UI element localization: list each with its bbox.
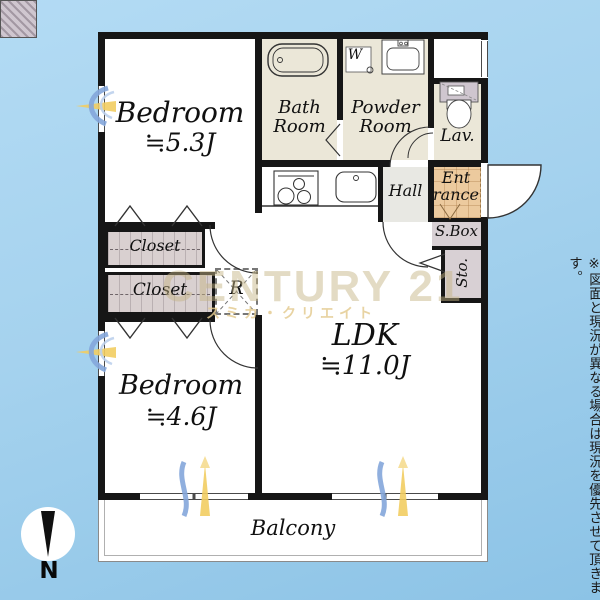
wall-porch-lav — [434, 78, 481, 84]
bedroom2-name-label: Bedroom — [105, 372, 257, 400]
wall-lav-bottom — [428, 160, 481, 167]
storage-label: Sto. — [455, 255, 471, 291]
closet-lower-label: Closet — [105, 282, 215, 300]
compass-circle — [21, 507, 75, 561]
wall-bottom-b — [248, 493, 332, 500]
hall-label: Hall — [383, 183, 428, 200]
compass-north-label: N — [34, 558, 64, 584]
wall-bottom-a — [98, 493, 140, 500]
window-bedroom1-left — [98, 86, 105, 132]
washing-machine-box — [0, 0, 37, 38]
window-bedroom2-left — [98, 331, 105, 376]
bath-line2: Room — [273, 116, 325, 137]
lavatory-floor — [434, 84, 481, 160]
wall-bedroom2-top — [98, 315, 215, 322]
entrance-label: Ent rance — [430, 170, 482, 204]
wall-right-lower — [481, 217, 488, 500]
bedroom1-size-label: ≒5.3J — [105, 130, 255, 156]
wall-bedroom1-bottom — [98, 222, 215, 229]
bath-room-label: Bath Room — [262, 99, 337, 137]
entrance-line2: rance — [433, 185, 479, 204]
ldk-size-label: ≒11.0J — [290, 353, 440, 380]
powder-room-label: Powder Room — [343, 99, 428, 137]
entrance-doorway-gap — [481, 163, 488, 217]
wall-kitchen-top — [258, 160, 390, 167]
window-porch-right — [481, 41, 488, 77]
wall-right-upper — [481, 32, 488, 40]
washer-label: W — [341, 48, 369, 63]
powder-line2: Room — [359, 116, 411, 137]
bedroom1-name-label: Bedroom — [105, 98, 255, 127]
powder-line1: Powder — [351, 97, 419, 118]
compass-needle-icon — [21, 507, 75, 561]
disclaimer-vertical-text: ※図面と現況が異なる場合は現況を優先させて頂きます。 — [564, 256, 600, 600]
floor-plan-canvas: Bedroom ≒5.3J Bath Room Powder Room Lav.… — [0, 0, 600, 600]
lavatory-label: Lav. — [434, 128, 481, 146]
sliding-door-ldk — [332, 493, 438, 500]
refrigerator-label: R — [215, 279, 258, 299]
wall-right-mid — [481, 78, 488, 163]
balcony-label: Balcony — [190, 517, 396, 539]
ldk-name-label: LDK — [290, 320, 440, 352]
wall-bedroom1-right — [255, 32, 262, 213]
closet-upper-label: Closet — [105, 238, 205, 255]
sliding-door-bedroom2 — [140, 493, 248, 500]
bedroom2-size-label: ≒4.6J — [105, 404, 257, 430]
entrance-door-swing — [488, 165, 541, 218]
wall-bottom-c — [438, 493, 488, 500]
wall-shoebox-bottom — [432, 246, 481, 250]
bath-line1: Bath — [278, 97, 321, 118]
wall-storage-left — [441, 250, 445, 298]
shoe-box-label: S.Box — [432, 224, 481, 240]
wall-storage-bottom — [441, 298, 485, 303]
